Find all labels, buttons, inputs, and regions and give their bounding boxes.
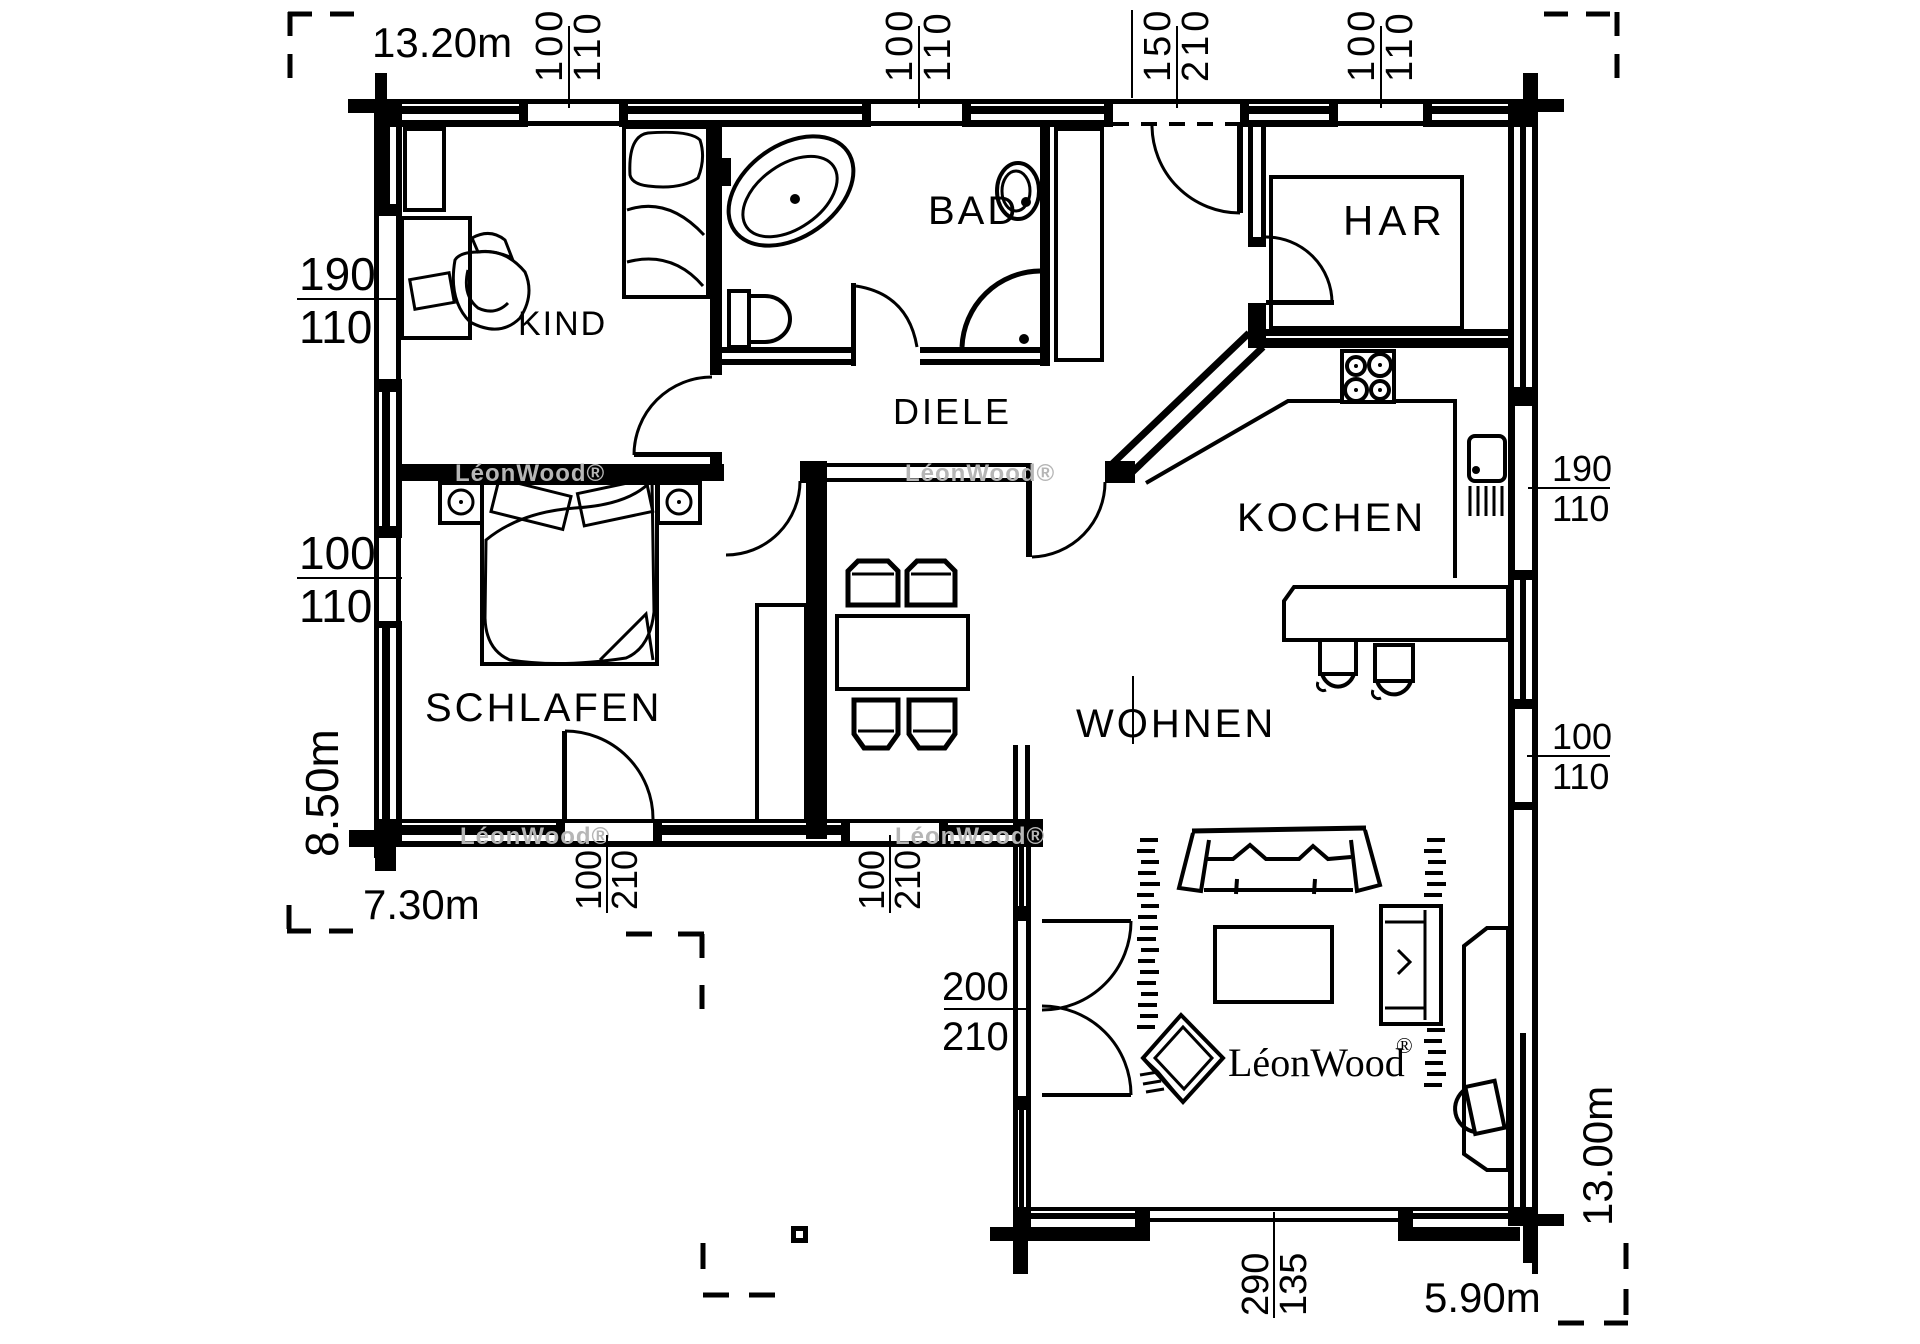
svg-text:KOCHEN: KOCHEN xyxy=(1237,496,1426,540)
svg-text:BAD: BAD xyxy=(928,189,1019,233)
svg-text:LéonWood: LéonWood xyxy=(1228,1040,1405,1085)
svg-text:110: 110 xyxy=(299,301,372,353)
svg-text:150: 150 xyxy=(1137,7,1179,82)
svg-text:LéonWood®: LéonWood® xyxy=(460,823,610,850)
svg-text:LéonWood®: LéonWood® xyxy=(905,460,1055,487)
svg-text:100: 100 xyxy=(1552,716,1612,757)
svg-text:110: 110 xyxy=(299,580,372,632)
svg-text:290: 290 xyxy=(1235,1253,1277,1316)
svg-text:190: 190 xyxy=(299,248,376,300)
svg-text:210: 210 xyxy=(887,850,928,910)
svg-text:100: 100 xyxy=(1341,7,1383,82)
svg-text:7.30m: 7.30m xyxy=(363,881,480,928)
svg-text:210: 210 xyxy=(604,850,645,910)
svg-text:HAR: HAR xyxy=(1343,197,1447,244)
svg-text:200: 200 xyxy=(942,965,1009,1009)
svg-text:WOHNEN: WOHNEN xyxy=(1076,702,1276,746)
svg-text:100: 100 xyxy=(568,850,609,910)
svg-text:KIND: KIND xyxy=(518,305,607,343)
svg-text:110: 110 xyxy=(1552,488,1609,529)
svg-text:110: 110 xyxy=(1552,756,1609,797)
svg-text:110: 110 xyxy=(917,9,959,82)
svg-text:100: 100 xyxy=(851,850,892,910)
svg-text:5.90m: 5.90m xyxy=(1424,1274,1541,1321)
svg-text:100: 100 xyxy=(529,7,571,82)
svg-text:110: 110 xyxy=(567,9,609,82)
svg-text:SCHLAFEN: SCHLAFEN xyxy=(425,686,662,730)
svg-text:100: 100 xyxy=(299,527,376,579)
svg-text:DIELE: DIELE xyxy=(893,391,1012,432)
svg-text:8.50m: 8.50m xyxy=(296,729,348,857)
svg-text:13.20m: 13.20m xyxy=(372,19,512,66)
svg-text:LéonWood®: LéonWood® xyxy=(895,823,1045,850)
svg-text:190: 190 xyxy=(1552,448,1612,489)
svg-text:13.00m: 13.00m xyxy=(1574,1086,1621,1226)
svg-text:210: 210 xyxy=(1175,7,1217,82)
svg-text:100: 100 xyxy=(879,7,921,82)
svg-text:110: 110 xyxy=(1379,9,1421,82)
svg-text:®: ® xyxy=(1396,1033,1413,1058)
svg-text:135: 135 xyxy=(1273,1253,1315,1316)
svg-text:LéonWood®: LéonWood® xyxy=(455,460,605,487)
svg-text:210: 210 xyxy=(942,1015,1009,1059)
